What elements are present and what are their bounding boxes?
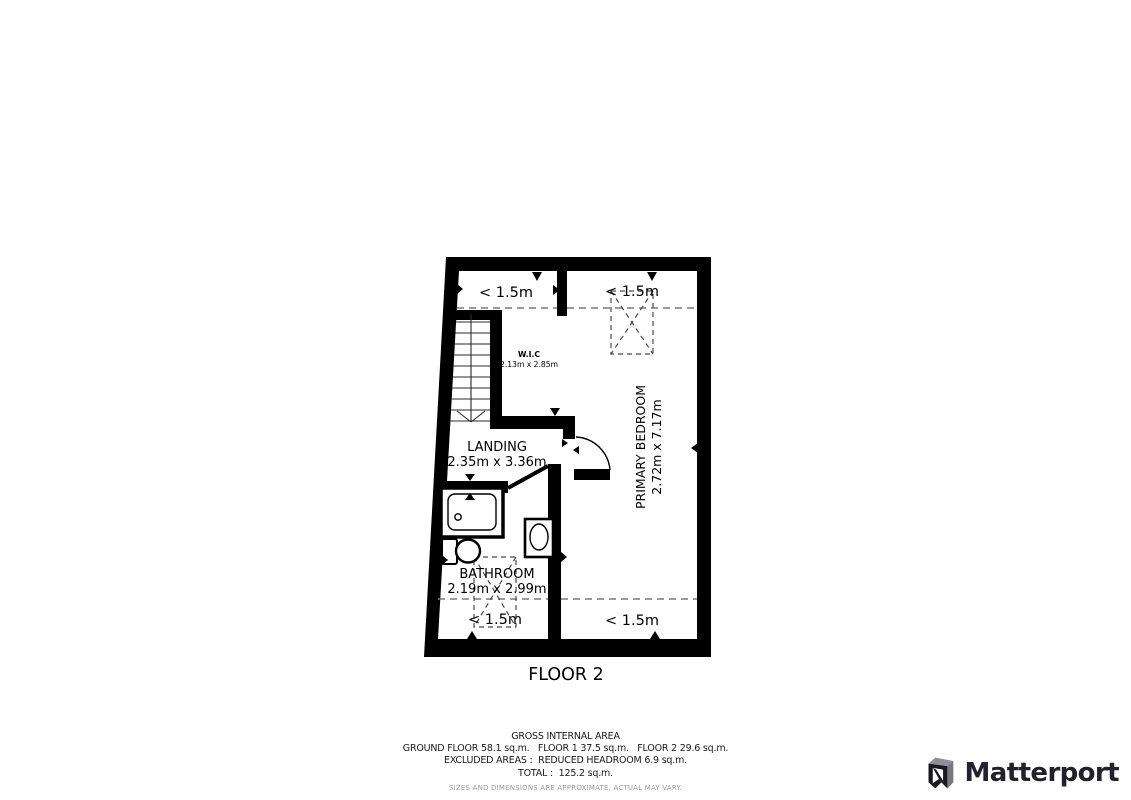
room-dims-bathroom: 2.19m x 2.99m: [447, 582, 546, 597]
room-label-primary-bedroom: PRIMARY BEDROOM: [633, 385, 648, 509]
headroom-label-bedroom: < 1.5m: [605, 613, 659, 629]
room-dims-wic: 2.13m x 2.85m: [500, 360, 558, 369]
measurement-marker: [650, 631, 660, 639]
floor-title: FLOOR 2: [528, 665, 604, 685]
measurement-marker: [457, 284, 463, 294]
headroom-label-bathroom: < 1.5m: [468, 612, 522, 628]
matterport-wordmark: Matterport: [965, 760, 1119, 786]
headroom-label-top-right: < 1.5m: [605, 284, 659, 300]
headroom-label-top-left: < 1.5m: [479, 285, 533, 301]
matterport-m-icon: [925, 755, 956, 791]
measurement-marker: [691, 443, 698, 453]
room-dims-landing: 2.35m x 3.36m: [447, 455, 546, 470]
room-label-landing: LANDING: [467, 440, 527, 455]
shower: [441, 488, 503, 537]
measurement-marker: [467, 631, 477, 639]
matterport-logo: Matterport: [925, 755, 1119, 791]
floor-areas-line: GROUND FLOOR 58.1 sq.m. FLOOR 1 37.5 sq.…: [0, 743, 1131, 755]
room-dims-primary-bedroom: 2.72m x 7.17m: [649, 399, 664, 494]
stair-direction-arrow: [457, 411, 471, 422]
room-label-bathroom: BATHROOM: [459, 567, 534, 582]
bedroom-door: [574, 437, 610, 480]
sink: [525, 519, 553, 557]
page: { "plan": { "floor_label": "FLOOR 2", "r…: [0, 0, 1131, 800]
door-swing-arc: [576, 437, 610, 470]
room-label-wic: W.I.C: [518, 350, 540, 359]
toilet: [442, 539, 480, 564]
measurement-marker: [561, 552, 567, 562]
stair-direction-arrow: [471, 411, 485, 422]
measurement-marker: [647, 272, 657, 281]
measurement-marker: [465, 474, 475, 481]
gross-internal-area-title: GROSS INTERNAL AREA: [0, 731, 1131, 743]
measurement-marker: [550, 408, 560, 416]
measurement-marker: [532, 272, 542, 281]
staircase: [451, 314, 491, 422]
measurement-marker: [573, 446, 579, 454]
measurement-marker: [562, 439, 568, 447]
floor-plan: < 1.5m < 1.5m W.I.C 2.13m x 2.85m LANDIN…: [0, 0, 1131, 800]
